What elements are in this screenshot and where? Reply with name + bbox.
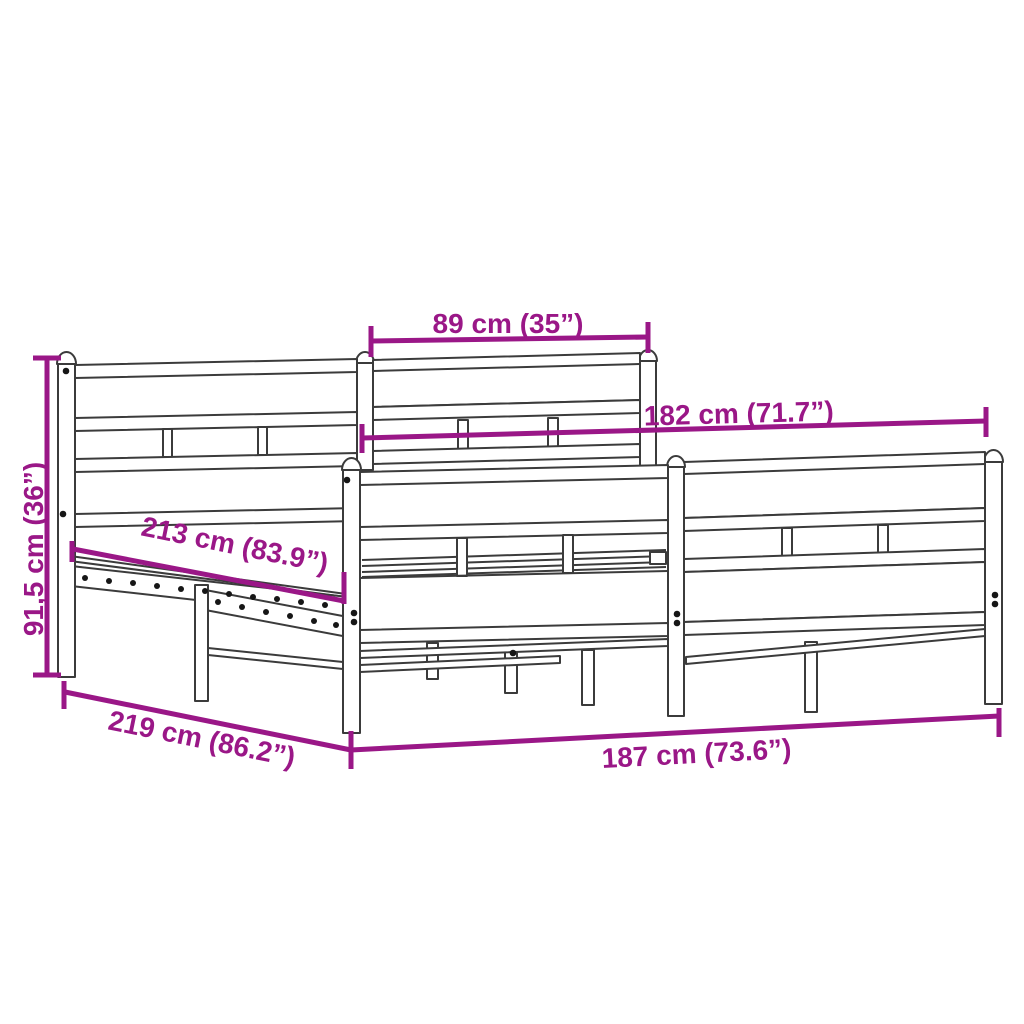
footboard-near-right-post xyxy=(668,467,684,716)
footboard-top-panel xyxy=(684,452,985,518)
rail-hole xyxy=(287,613,293,619)
screw-dot xyxy=(351,619,358,626)
rail-hole xyxy=(274,596,280,602)
screw-dot xyxy=(60,511,67,518)
label-headboard-height: 91,5 cm (36”) xyxy=(18,462,49,636)
label-overall-width: 187 cm (73.6”) xyxy=(601,733,792,774)
headboard-mid-rail xyxy=(75,412,357,431)
headboard-far-section xyxy=(356,350,657,470)
rail-hole xyxy=(178,586,184,592)
rail-hole xyxy=(202,588,208,594)
post-ball-cap xyxy=(667,456,685,467)
rail-hole xyxy=(322,602,328,608)
footboard-bar xyxy=(563,535,573,573)
headboard-lower-rail xyxy=(75,453,357,472)
headboard-near-left-post xyxy=(58,364,75,677)
headboard-bar xyxy=(258,427,267,455)
rail-hole xyxy=(311,618,317,624)
diagram-canvas: 89 cm (35”) 182 cm (71.7”) 91,5 cm (36”)… xyxy=(0,0,1024,1024)
rail-hole xyxy=(263,609,269,615)
footboard-bar xyxy=(457,538,467,576)
bed-frame-dimension-diagram: 89 cm (35”) 182 cm (71.7”) 91,5 cm (36”)… xyxy=(0,0,1024,1024)
rail-hole xyxy=(82,575,88,581)
stretcher-bar xyxy=(360,656,560,672)
footboard-bar xyxy=(782,528,792,558)
screw-dot xyxy=(674,611,681,618)
headboard-top-rail xyxy=(75,359,357,378)
screw-dot xyxy=(510,650,517,657)
label-overall-length: 219 cm (86.2”) xyxy=(106,705,298,773)
rail-hole xyxy=(226,591,232,597)
rail-hole xyxy=(298,599,304,605)
screw-dot xyxy=(351,610,358,617)
screw-dot xyxy=(992,592,999,599)
label-inner-length: 182 cm (71.7”) xyxy=(643,396,834,432)
screw-dot xyxy=(344,477,351,484)
headboard-lower-rail xyxy=(373,444,640,464)
rail-hole xyxy=(154,583,160,589)
rail-hole xyxy=(239,604,245,610)
post-ball-cap xyxy=(984,450,1003,462)
headboard-far-left-post xyxy=(357,363,373,470)
rail-hole xyxy=(250,594,256,600)
screw-dot xyxy=(674,620,681,627)
footboard-bar xyxy=(878,525,888,555)
footboard-top-rail xyxy=(360,465,668,485)
rail-hole xyxy=(215,599,221,605)
screw-dot xyxy=(63,368,70,375)
corner-bracket xyxy=(650,552,666,564)
label-headboard-top-width: 89 cm (35”) xyxy=(433,308,584,339)
support-leg xyxy=(195,585,208,701)
rail-hole xyxy=(130,580,136,586)
headboard-bar xyxy=(163,429,172,457)
stretcher-bar xyxy=(208,648,343,669)
footboard-far-right-post xyxy=(985,462,1002,704)
footboard-far-section xyxy=(684,450,1003,704)
screw-dot xyxy=(992,601,999,608)
footboard-mid-rail xyxy=(360,520,668,540)
rail-hole xyxy=(333,622,339,628)
headboard-top-panel xyxy=(373,353,640,407)
rail-hole xyxy=(106,578,112,584)
support-leg xyxy=(582,650,594,705)
